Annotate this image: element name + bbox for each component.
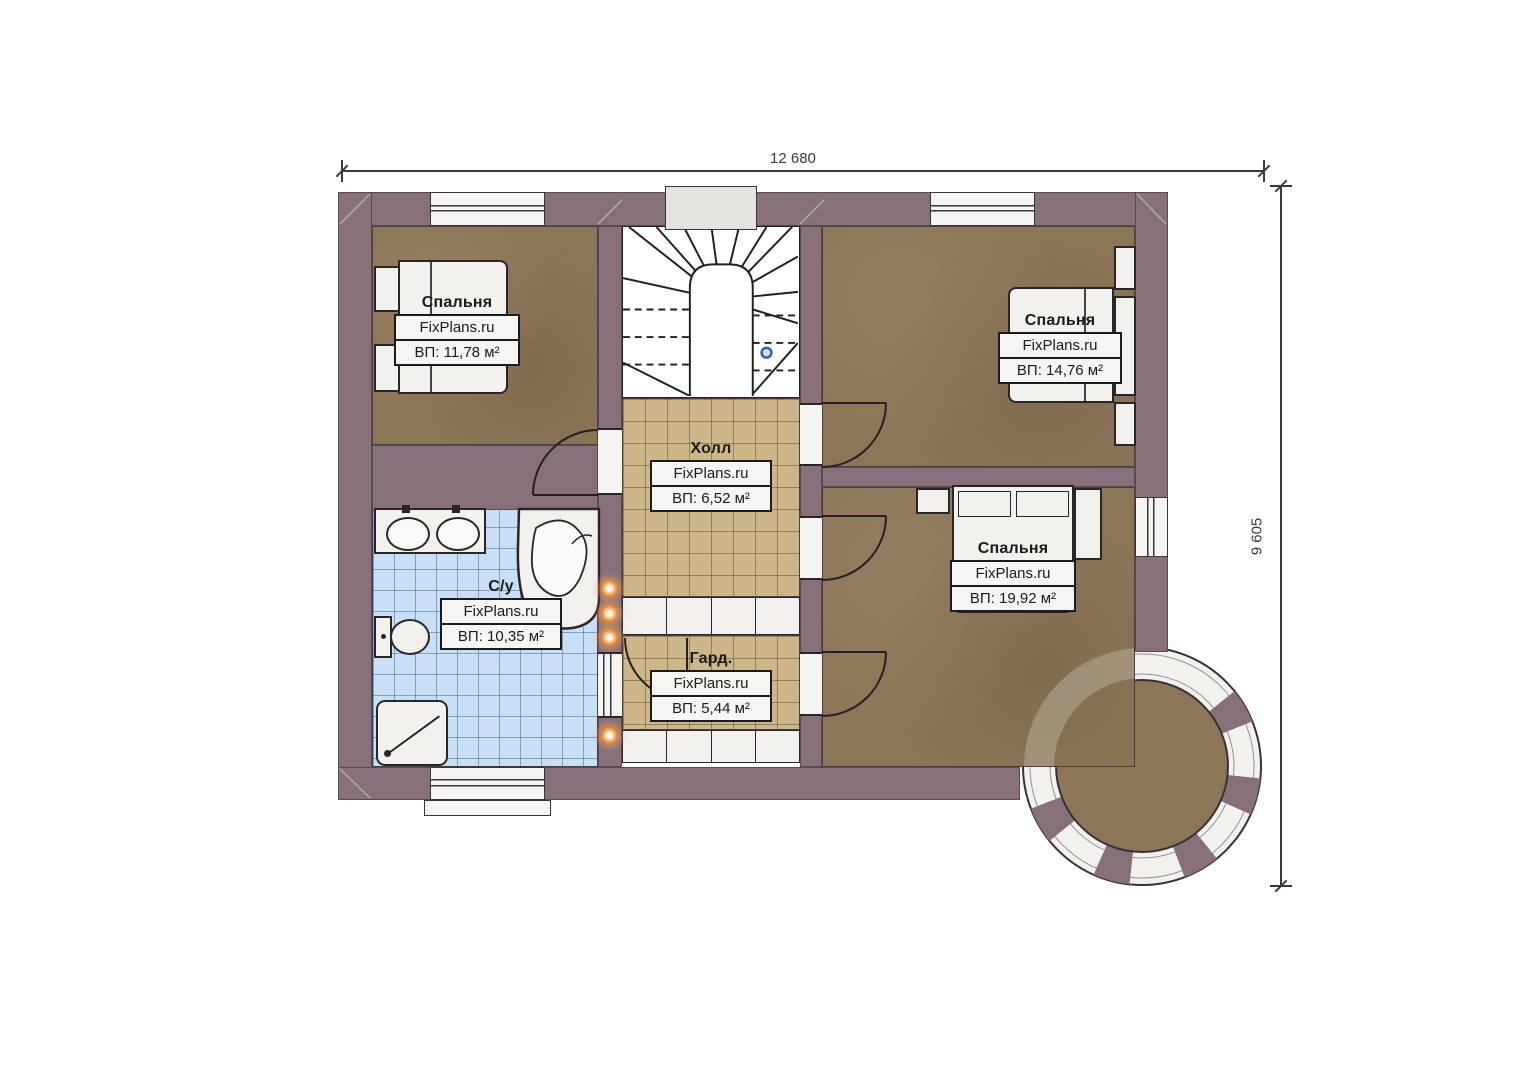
dimension-top-ext-right (1263, 160, 1265, 182)
staircase-symbol (623, 227, 798, 396)
nightstand-symbol (1114, 246, 1136, 290)
room-label-hall: Холл FixPlans.ru ВП: 6,52 м² (650, 438, 772, 512)
room-name: Холл (650, 438, 772, 459)
area-label: ВП: 11,78 м² (396, 339, 518, 364)
wall-light-dot (601, 605, 618, 622)
wall-light-dot (601, 727, 618, 744)
nightstand-symbol (916, 488, 950, 514)
wall-bathroom-divider (372, 445, 598, 510)
room-label-bathroom: С/у FixPlans.ru ВП: 10,35 м² (440, 576, 562, 650)
door-opening-bedroom-top-right (800, 403, 822, 466)
sink-symbol (436, 517, 480, 551)
stair-direction-marker (762, 348, 772, 358)
room-name: Спальня (998, 310, 1122, 331)
dimension-height-label: 9 605 (1248, 518, 1265, 556)
wall-light-dot (601, 580, 618, 597)
brand-label: FixPlans.ru (652, 672, 770, 695)
brand-label: FixPlans.ru (396, 316, 518, 339)
stairwell (622, 226, 800, 398)
door-opening-bedroom-bottom-right (800, 516, 822, 580)
wall-right (1135, 192, 1168, 652)
shower-tray-symbol (376, 700, 448, 766)
room-label-bedroom-left: Спальня FixPlans.ru ВП: 11,78 м² (394, 292, 520, 366)
room-name: Спальня (950, 538, 1076, 559)
area-label: ВП: 19,92 м² (952, 585, 1074, 610)
area-label: ВП: 6,52 м² (652, 485, 770, 510)
dimension-top-line (342, 170, 1264, 172)
floor-plan-canvas: 12 680 9 605 (0, 0, 1528, 1080)
door-opening-wardrobe-bedroom (800, 652, 822, 716)
wall-bedrooms-divider (822, 467, 1135, 487)
brand-label: FixPlans.ru (652, 462, 770, 485)
room-label-bedroom-top-right: Спальня FixPlans.ru ВП: 14,76 м² (998, 310, 1122, 384)
room-label-bedroom-bottom-right: Спальня FixPlans.ru ВП: 19,92 м² (950, 538, 1076, 612)
area-label: ВП: 5,44 м² (652, 695, 770, 720)
wardrobe-cabinets-top (622, 597, 800, 635)
brand-label: FixPlans.ru (442, 600, 560, 623)
faucet-symbol (402, 505, 410, 513)
window-bottom (430, 767, 545, 800)
pillow-symbol (1016, 491, 1069, 517)
window-top-right (930, 192, 1035, 226)
brand-label: FixPlans.ru (1000, 334, 1120, 357)
pillow-symbol (958, 491, 1011, 517)
room-name: Спальня (394, 292, 520, 313)
area-label: ВП: 10,35 м² (442, 623, 560, 648)
dimension-right-ext-bottom (1270, 885, 1292, 887)
nightstand-symbol (1114, 402, 1136, 446)
dimension-top-ext-left (341, 160, 343, 182)
nightstand-symbol (1074, 488, 1102, 560)
toilet-bowl-symbol (390, 619, 430, 655)
window-stairs (665, 186, 757, 230)
door-opening-bathroom-sliding (598, 652, 622, 718)
door-opening-bedroom-left (598, 428, 622, 495)
window-right (1135, 497, 1168, 557)
room-label-wardrobe: Гард. FixPlans.ru ВП: 5,44 м² (650, 648, 772, 722)
wall-left (338, 192, 372, 800)
faucet-symbol (452, 505, 460, 513)
dimension-right-line (1280, 186, 1282, 886)
dimension-width-label: 12 680 (770, 150, 816, 167)
vanity-counter-symbol (374, 508, 486, 554)
area-label: ВП: 14,76 м² (1000, 357, 1120, 382)
room-name: С/у (440, 576, 562, 597)
wardrobe-cabinets-bottom (622, 730, 800, 763)
window-top-left (430, 192, 545, 226)
sink-symbol (386, 517, 430, 551)
window-bottom-sill (424, 800, 551, 816)
tower-floor-arc (1024, 648, 1135, 767)
wall-light-dot (601, 629, 618, 646)
brand-label: FixPlans.ru (952, 562, 1074, 585)
room-name: Гард. (650, 648, 772, 669)
dimension-right-ext-top (1270, 185, 1292, 187)
